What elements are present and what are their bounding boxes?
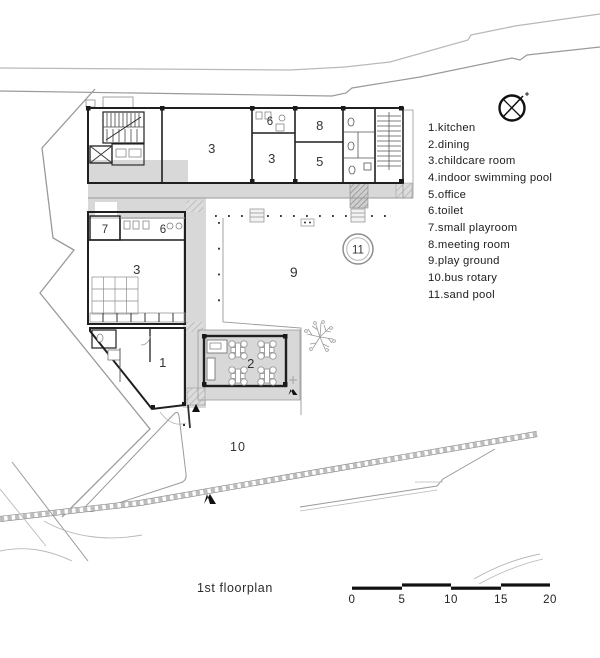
room-label-office: 5: [316, 154, 324, 169]
scale-tick-0: 0: [349, 594, 356, 606]
toilet-fixtures-west: [124, 221, 182, 229]
top-wing: 3 6 8 3 5: [86, 97, 413, 198]
floorplan-page: 1.kitchen 2.dining 3.childcare room 4.in…: [0, 0, 600, 658]
road-edge-lines: [0, 449, 543, 584]
floorplan-drawing: 1.kitchen 2.dining 3.childcare room 4.in…: [0, 0, 600, 658]
legend-item-meeting-room: 8.meeting room: [428, 239, 510, 251]
room-label-playroom: 7: [102, 224, 108, 236]
scale-tick-20: 20: [543, 594, 557, 606]
site-label-playground: 9: [290, 264, 298, 280]
toilet-fixtures-east: [343, 118, 375, 174]
legend-item-sand-pool: 11.sand pool: [428, 289, 495, 301]
legend-item-small-playroom: 7.small playroom: [428, 222, 517, 234]
site-contour-lines: [0, 14, 600, 96]
room-label-kitchen: 1: [159, 355, 167, 370]
room-label-toilet-b: 6: [160, 224, 166, 236]
room-label-toilet-a: 6: [267, 116, 273, 128]
stairs-east-icon: [377, 112, 401, 170]
legend-item-office: 5.office: [428, 189, 466, 201]
room-label-childcare-a: 3: [208, 141, 216, 156]
legend-item-indoor-swimming-pool: 4.indoor swimming pool: [428, 172, 552, 184]
south-veranda-posts: [90, 313, 185, 322]
kitchen-block: 1: [90, 328, 186, 409]
room-label-dining: 2: [247, 356, 255, 371]
retaining-wall-strip: [0, 434, 537, 519]
room-label-meeting: 8: [316, 118, 324, 133]
exterior-steps-hatched: [186, 183, 412, 332]
legend-item-play-ground: 9.play ground: [428, 255, 500, 267]
scale-bar: 0 5 10 15 20: [349, 583, 557, 606]
left-wing: 7 6 3: [88, 212, 185, 324]
site-label-sand-pool: 11: [352, 245, 364, 257]
sand-pool-circle: 11: [343, 234, 373, 264]
north-compass-icon: [500, 92, 530, 121]
legend-item-toilet: 6.toilet: [428, 205, 464, 217]
tree-icon: [305, 321, 336, 352]
drawing-caption: 1st floorplan: [197, 581, 273, 595]
legend-item-childcare-room: 3.childcare room: [428, 155, 516, 167]
legend: 1.kitchen 2.dining 3.childcare room 4.in…: [428, 122, 552, 301]
entrance-arrow-road: [204, 494, 216, 504]
legend-item-dining: 2.dining: [428, 139, 470, 151]
legend-item-bus-rotary: 10.bus rotary: [428, 272, 497, 284]
stairs-west-icon: [103, 112, 144, 143]
compass-star-mark: [525, 92, 529, 96]
scale-tick-10: 10: [444, 594, 458, 606]
site-label-bus-rotary: 10: [230, 440, 246, 454]
room-label-childcare-b: 3: [268, 151, 276, 166]
legend-item-kitchen: 1.kitchen: [428, 122, 475, 134]
small-equipment-box: [301, 219, 314, 226]
scale-tick-15: 15: [494, 594, 508, 606]
scale-tick-5: 5: [399, 594, 406, 606]
tatami-grid: [92, 277, 138, 314]
room-label-childcare-c: 3: [133, 262, 141, 277]
